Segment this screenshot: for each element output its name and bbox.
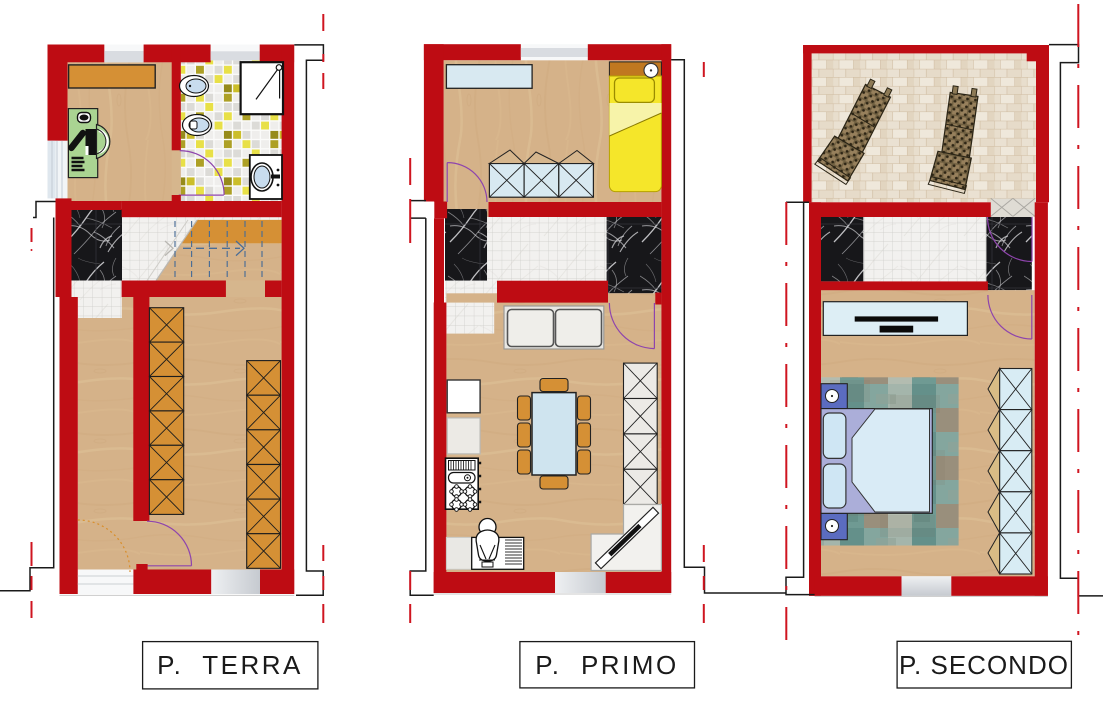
svg-text:P. PRIMO: P. PRIMO (535, 650, 678, 680)
svg-text:P. TERRA: P. TERRA (157, 650, 303, 680)
svg-text:P. SECONDO: P. SECONDO (899, 650, 1069, 680)
